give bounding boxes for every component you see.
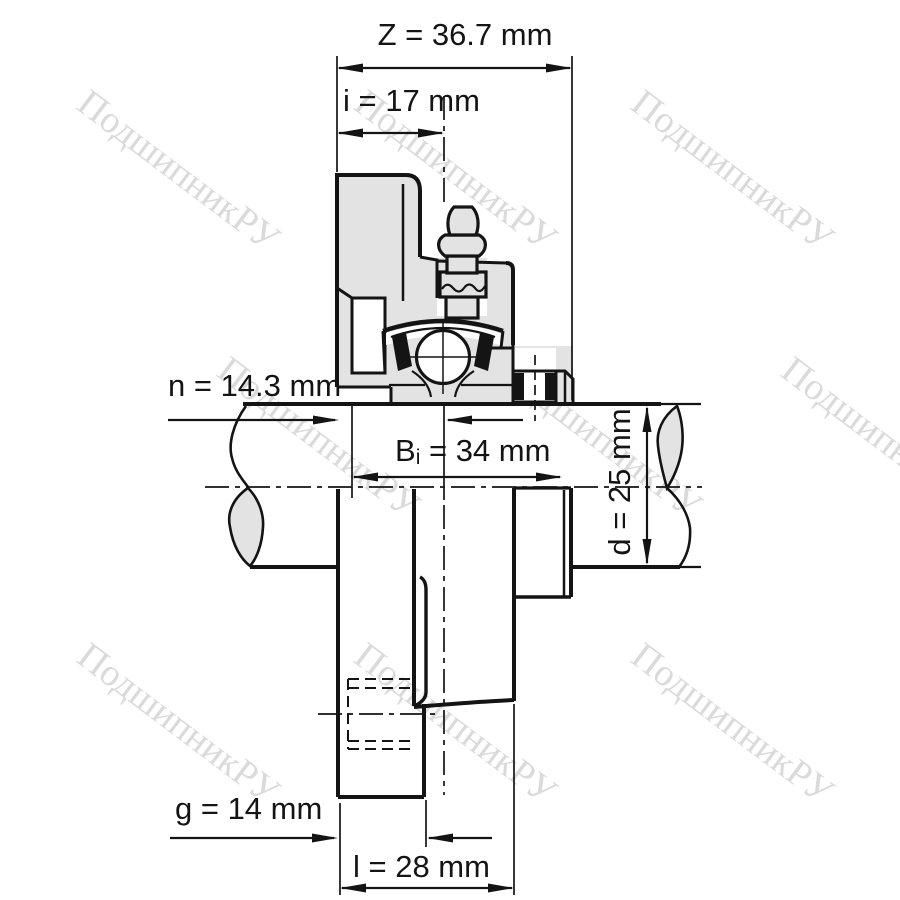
set-screw-thread-right	[545, 373, 555, 400]
dimension-label-Bi: Bi = 34 mm	[395, 433, 550, 469]
bearing-drawing-svg: ПодшипникРУ ПодшипникРУ ПодшипникРУ Подш…	[0, 0, 900, 900]
grease-fitting-stem	[446, 296, 478, 318]
set-screw-thread-left	[514, 373, 524, 400]
arrowhead-right-icon	[536, 473, 562, 482]
watermark-text: ПодшипникРУ	[624, 635, 842, 814]
bearing-drawing-canvas: ПодшипникРУ ПодшипникРУ ПодшипникРУ Подш…	[0, 0, 900, 900]
arrowhead-left-icon	[337, 64, 363, 73]
grease-fitting-bulb	[439, 235, 486, 256]
hub-end-piece	[514, 488, 571, 597]
arrowhead-left-icon	[427, 834, 453, 843]
arrowhead-left-icon	[446, 416, 472, 425]
shaft-break-left-upper	[231, 406, 248, 487]
shaft-break-left-lens	[229, 488, 263, 566]
fitting-hole-right	[479, 298, 487, 316]
dimension-g: g = 14 mm	[170, 791, 492, 847]
watermark-text: ПодшипникРУ	[624, 82, 842, 261]
watermark-text: ПодшипникРУ	[70, 82, 288, 261]
watermark-text: ПодшипникРУ	[70, 635, 288, 814]
arrowhead-right-icon	[488, 884, 514, 893]
grease-fitting-neck	[447, 256, 477, 273]
dimension-label-n: n = 14.3 mm	[168, 368, 341, 403]
arrowhead-right-icon	[312, 834, 338, 843]
arrowhead-up-icon	[643, 406, 652, 432]
watermark-text: ПодшипникРУ	[774, 349, 900, 528]
arrowhead-left-icon	[340, 884, 366, 893]
flange-recess-cutout	[352, 298, 385, 373]
dimension-label-i: i = 17 mm	[343, 83, 480, 118]
shaft-clearance-gap	[337, 389, 390, 403]
dimension-label-Z: Z = 36.7 mm	[378, 17, 553, 52]
watermark-text: ПодшипникРУ	[347, 635, 565, 814]
arrowhead-down-icon	[643, 539, 652, 565]
dimension-label-l: l = 28 mm	[353, 849, 490, 884]
arrowhead-right-icon	[546, 64, 572, 73]
grease-fitting-cap	[448, 207, 478, 235]
label-Bi-rest: = 34 mm	[420, 433, 550, 468]
fitting-hole-left	[437, 298, 445, 316]
dimension-label-g: g = 14 mm	[175, 791, 322, 826]
arrowhead-left-icon	[337, 129, 363, 138]
dimension-label-d: d = 25 mm	[602, 408, 637, 555]
label-Bi-prefix: B	[395, 433, 416, 468]
